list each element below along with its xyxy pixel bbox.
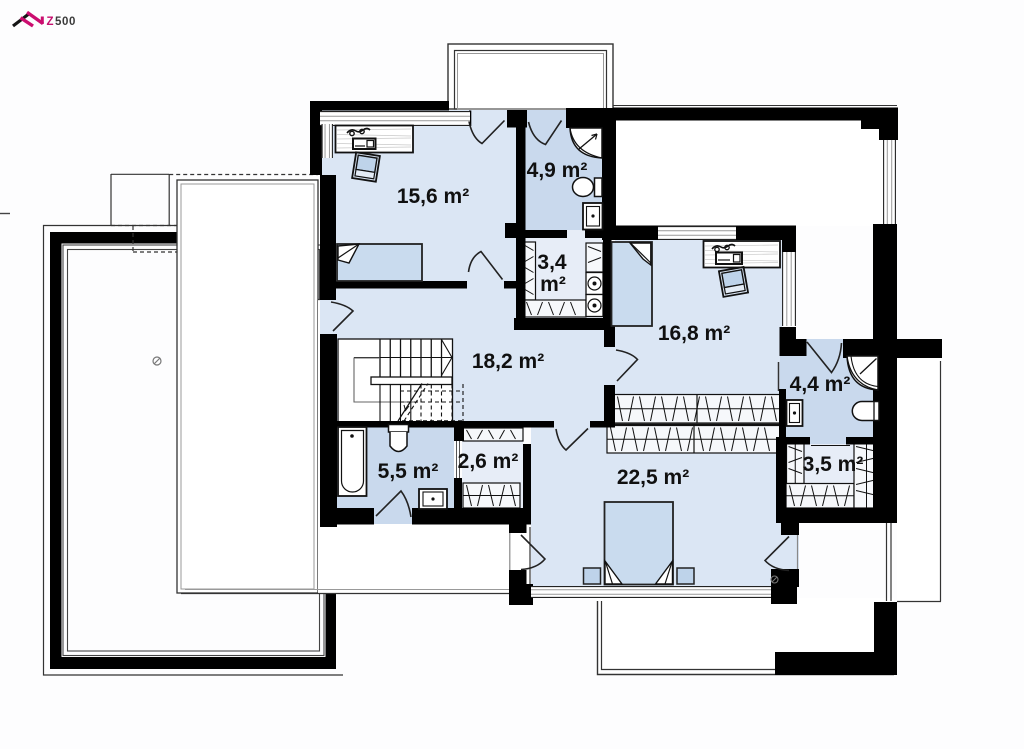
svg-text:Z: Z [47,16,54,28]
svg-text:16,8 m²: 16,8 m² [658,322,730,345]
svg-text:4,4 m²: 4,4 m² [790,373,851,396]
svg-text:500: 500 [55,16,76,28]
svg-text:15,6 m²: 15,6 m² [397,185,469,208]
svg-text:3,5 m²: 3,5 m² [803,453,864,476]
svg-text:m²: m² [540,273,566,296]
svg-text:22,5 m²: 22,5 m² [617,466,689,489]
svg-text:3,4: 3,4 [537,251,567,274]
svg-text:5,5 m²: 5,5 m² [378,460,439,483]
svg-text:2,6 m²: 2,6 m² [458,450,519,473]
svg-text:4,9 m²: 4,9 m² [527,159,588,182]
svg-text:18,2 m²: 18,2 m² [472,350,544,373]
